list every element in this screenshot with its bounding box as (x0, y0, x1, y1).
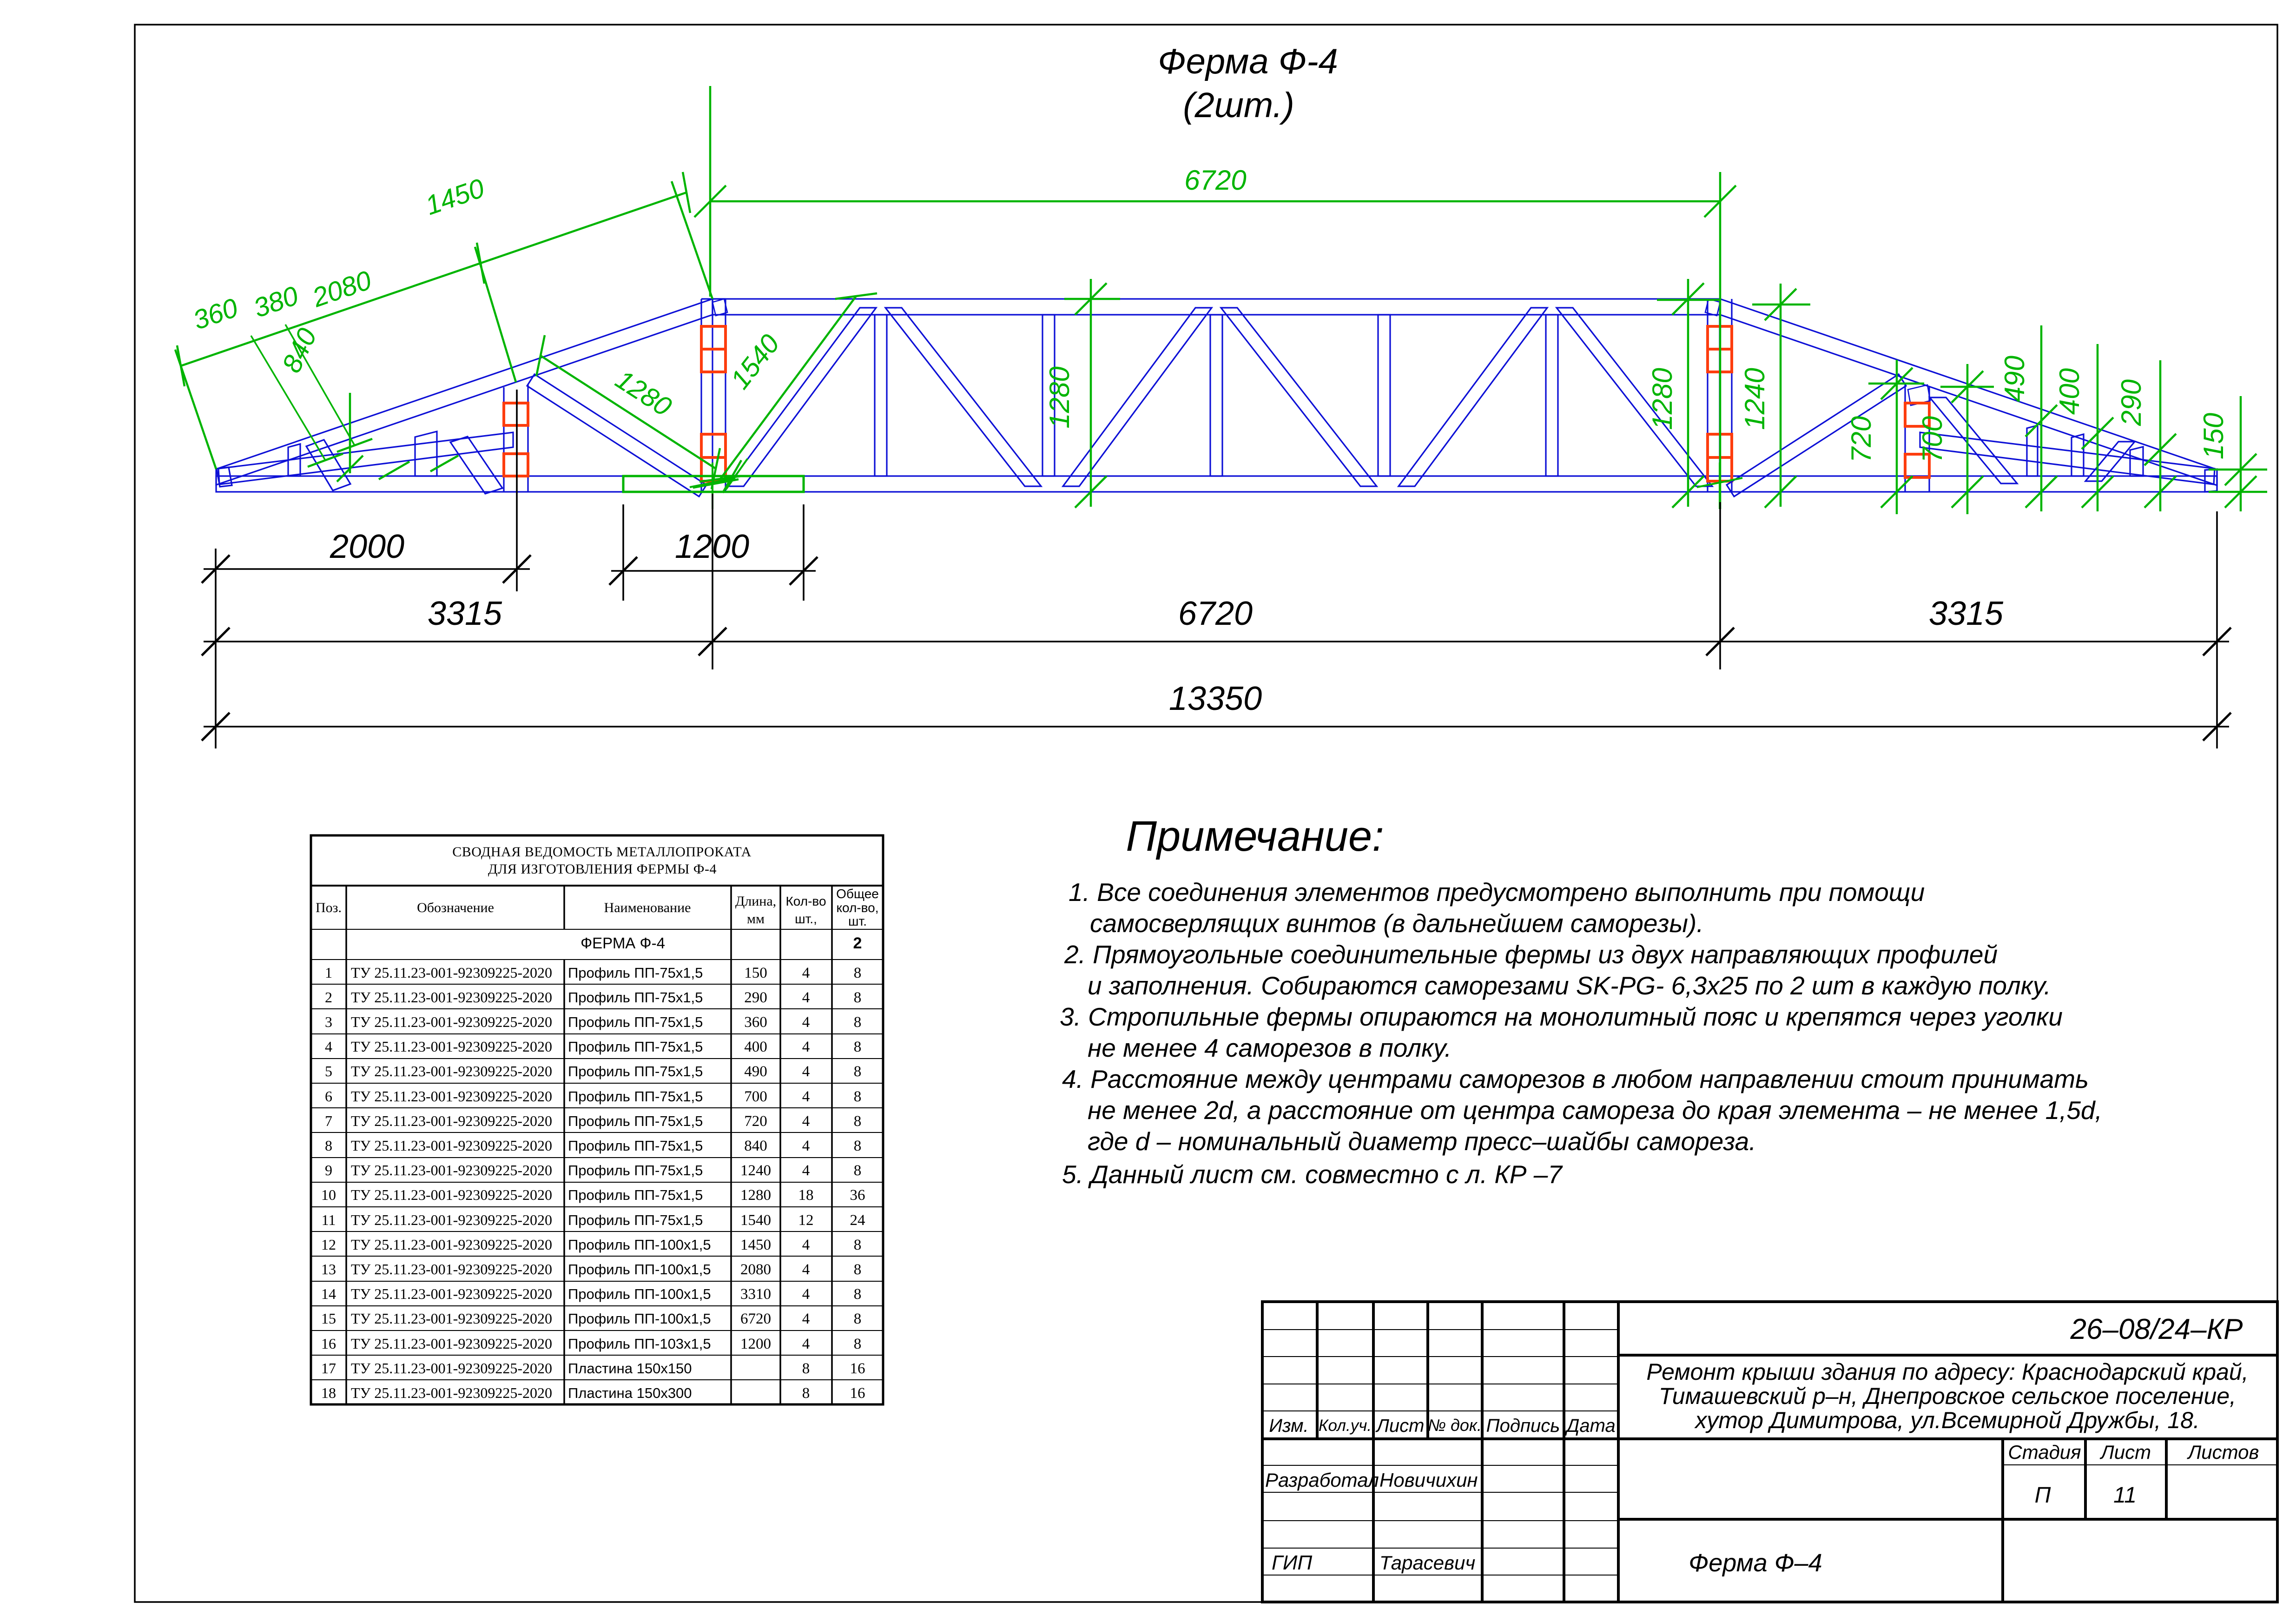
svg-text:Профиль ПП-100х1,5: Профиль ПП-100х1,5 (568, 1237, 711, 1253)
svg-text:Наименование: Наименование (604, 900, 691, 915)
svg-text:8: 8 (854, 1237, 862, 1253)
svg-text:8: 8 (802, 1360, 810, 1377)
svg-text:8: 8 (854, 1138, 862, 1154)
svg-text:Профиль ПП-75х1,5: Профиль ПП-75х1,5 (568, 1039, 703, 1055)
svg-text:ТУ 25.11.23-001-92309225-2020: ТУ 25.11.23-001-92309225-2020 (351, 1360, 552, 1377)
svg-text:5. Данный лист см. совме: 5. Данный лист см. совместно с л. КР –7 (1062, 1160, 1563, 1189)
svg-text:Новичихин: Новичихин (1379, 1469, 1478, 1491)
svg-text:Изм.: Изм. (1269, 1416, 1308, 1436)
svg-text:8: 8 (802, 1385, 810, 1402)
svg-text:мм: мм (747, 911, 765, 927)
svg-text:16: 16 (321, 1335, 336, 1352)
svg-text:ТУ 25.11.23-001-92309225-2020: ТУ 25.11.23-001-92309225-2020 (351, 1112, 552, 1129)
svg-text:4: 4 (802, 1113, 810, 1130)
svg-text:Профиль ПП-75х1,5: Профиль ПП-75х1,5 (568, 1187, 703, 1203)
svg-text:3. Стропильные фермы опираютс: 3. Стропильные фермы опираются на моноли… (1060, 1002, 2063, 1031)
svg-text:ТУ 25.11.23-001-92309225-2020: ТУ 25.11.23-001-92309225-2020 (351, 1038, 552, 1055)
svg-text:4: 4 (802, 1014, 810, 1031)
svg-text:ТУ 25.11.23-001-92309225-2020: ТУ 25.11.23-001-92309225-2020 (351, 1285, 552, 1302)
svg-text:1200: 1200 (675, 528, 749, 565)
svg-text:8: 8 (854, 1261, 862, 1278)
svg-text:7: 7 (325, 1112, 332, 1129)
svg-text:хутор Димитрова, ул.Всемирной: хутор Димитрова, ул.Всемирной Дружбы, 18… (1694, 1407, 2200, 1433)
svg-text:ТУ 25.11.23-001-92309225-2020: ТУ 25.11.23-001-92309225-2020 (351, 1236, 552, 1253)
svg-text:1240: 1240 (740, 1162, 771, 1179)
svg-text:3315: 3315 (1929, 595, 2004, 632)
svg-text:4. Расстояние между центрами: 4. Расстояние между центрами саморезов в… (1062, 1065, 2089, 1093)
svg-text:4: 4 (802, 1311, 810, 1327)
svg-text:Профиль ПП-75х1,5: Профиль ПП-75х1,5 (568, 1212, 703, 1228)
svg-text:8: 8 (854, 1336, 862, 1352)
svg-text:ТУ 25.11.23-001-92309225-2020: ТУ 25.11.23-001-92309225-2020 (351, 989, 552, 1006)
svg-text:1240: 1240 (1739, 368, 1770, 430)
svg-text:ТУ 25.11.23-001-92309225-2020: ТУ 25.11.23-001-92309225-2020 (351, 1162, 552, 1178)
svg-text:8: 8 (854, 989, 862, 1006)
svg-text:840: 840 (744, 1138, 767, 1154)
svg-text:13: 13 (321, 1261, 336, 1278)
svg-text:ТУ 25.11.23-001-92309225-2020: ТУ 25.11.23-001-92309225-2020 (351, 1261, 552, 1278)
svg-text:4: 4 (802, 1336, 810, 1352)
svg-text:17: 17 (321, 1360, 336, 1377)
svg-text:Профиль ПП-103х1,5: Профиль ПП-103х1,5 (568, 1336, 711, 1352)
svg-text:2080: 2080 (740, 1261, 771, 1278)
svg-text:П: П (2035, 1483, 2051, 1508)
svg-text:16: 16 (850, 1385, 865, 1402)
svg-text:Общее: Общее (836, 887, 879, 901)
svg-text:ТУ 25.11.23-001-92309225-2020: ТУ 25.11.23-001-92309225-2020 (351, 1335, 552, 1352)
svg-text:ТУ 25.11.23-001-92309225-2020: ТУ 25.11.23-001-92309225-2020 (351, 964, 552, 981)
svg-text:Профиль ПП-75х1,5: Профиль ПП-75х1,5 (568, 965, 703, 981)
svg-text:шт.,: шт., (795, 912, 817, 926)
svg-text:Примечание:: Примечание: (1126, 813, 1384, 860)
svg-text:ФЕРМА Ф-4: ФЕРМА Ф-4 (581, 934, 665, 952)
svg-text:4: 4 (802, 965, 810, 981)
svg-text:2000: 2000 (330, 528, 404, 565)
svg-text:400: 400 (744, 1039, 767, 1055)
svg-text:4: 4 (802, 1039, 810, 1055)
svg-text:1200: 1200 (740, 1336, 771, 1352)
svg-text:8: 8 (854, 1113, 862, 1130)
svg-text:8: 8 (854, 1311, 862, 1327)
svg-text:Кол-во: Кол-во (785, 894, 826, 908)
svg-text:700: 700 (1917, 416, 1948, 463)
svg-text:16: 16 (850, 1360, 865, 1377)
svg-text:24: 24 (850, 1212, 865, 1229)
svg-text:1280: 1280 (740, 1187, 771, 1204)
svg-text:Профиль ПП-75х1,5: Профиль ПП-75х1,5 (568, 1063, 703, 1079)
svg-text:ГИП: ГИП (1272, 1551, 1312, 1574)
svg-text:ТУ 25.11.23-001-92309225-2020: ТУ 25.11.23-001-92309225-2020 (351, 1013, 552, 1030)
svg-text:720: 720 (744, 1113, 767, 1130)
svg-text:Профиль ПП-75х1,5: Профиль ПП-75х1,5 (568, 989, 703, 1006)
svg-text:Профиль ПП-75х1,5: Профиль ПП-75х1,5 (568, 1014, 703, 1030)
svg-text:12: 12 (321, 1236, 336, 1253)
svg-text:Разработал: Разработал (1265, 1469, 1379, 1491)
svg-text:1: 1 (325, 964, 332, 981)
svg-text:СВОДНАЯ ВЕДОМОСТЬ МЕТАЛЛОПР: СВОДНАЯ ВЕДОМОСТЬ МЕТАЛЛОПРОКАТА (452, 844, 752, 860)
svg-text:11: 11 (2113, 1483, 2137, 1508)
svg-text:1450: 1450 (740, 1237, 771, 1253)
svg-text:Профиль ПП-100х1,5: Профиль ПП-100х1,5 (568, 1286, 711, 1302)
svg-text:26–08/24–КР: 26–08/24–КР (2070, 1313, 2243, 1345)
svg-text:18: 18 (321, 1384, 336, 1401)
svg-text:и заполнения. Собираются само: и заполнения. Собираются саморезами SK-P… (1088, 971, 2051, 1000)
svg-text:Листов: Листов (2187, 1441, 2259, 1463)
svg-text:Ферма Ф-4: Ферма Ф-4 (1158, 42, 1338, 81)
svg-text:10: 10 (321, 1186, 336, 1203)
svg-text:290: 290 (744, 989, 767, 1006)
svg-text:5: 5 (325, 1063, 332, 1079)
svg-text:самосверлящих винтов (в дальн: самосверлящих винтов (в дальнейшем самор… (1090, 909, 1704, 938)
svg-text:Тарасевич: Тарасевич (1379, 1552, 1475, 1574)
svg-text:№ док.: № док. (1428, 1416, 1482, 1435)
svg-text:8: 8 (854, 1088, 862, 1105)
svg-text:Тимашевский р–н, Днепровское: Тимашевский р–н, Днепровское сельское по… (1659, 1383, 2236, 1409)
svg-text:2: 2 (325, 989, 332, 1006)
svg-text:2: 2 (853, 934, 862, 952)
svg-text:4: 4 (802, 1237, 810, 1253)
svg-text:2. Прямоугольные соединитель: 2. Прямоугольные соединительные фермы из… (1064, 940, 1998, 969)
svg-text:не менее 2d, а расстояние от ц: не менее 2d, а расстояние от центра само… (1088, 1096, 2102, 1125)
svg-text:ТУ 25.11.23-001-92309225-2020: ТУ 25.11.23-001-92309225-2020 (351, 1088, 552, 1105)
svg-text:290: 290 (2116, 379, 2147, 426)
svg-text:4: 4 (802, 989, 810, 1006)
svg-text:шт.: шт. (848, 914, 867, 928)
svg-text:где d – номинальный диаметр пр: где d – номинальный диаметр пресс–шайбы … (1088, 1127, 1756, 1156)
svg-text:15: 15 (321, 1310, 336, 1327)
svg-text:Пластина 150х150: Пластина 150х150 (568, 1360, 692, 1377)
svg-text:1280: 1280 (1044, 366, 1075, 428)
svg-text:13350: 13350 (1169, 680, 1262, 717)
svg-text:3: 3 (325, 1013, 332, 1030)
svg-text:8: 8 (854, 1162, 862, 1179)
svg-text:Профиль ПП-100х1,5: Профиль ПП-100х1,5 (568, 1261, 711, 1278)
svg-text:1540: 1540 (740, 1212, 771, 1229)
svg-text:не менее 4 саморезов в полк: не менее 4 саморезов в полку. (1088, 1033, 1451, 1062)
svg-text:6: 6 (325, 1088, 332, 1105)
svg-text:Профиль ПП-100х1,5: Профиль ПП-100х1,5 (568, 1311, 711, 1327)
svg-text:4: 4 (802, 1088, 810, 1105)
svg-text:Подпись: Подпись (1486, 1416, 1560, 1436)
svg-text:8: 8 (854, 1039, 862, 1055)
svg-text:18: 18 (798, 1187, 814, 1204)
svg-text:ТУ 25.11.23-001-92309225-2020: ТУ 25.11.23-001-92309225-2020 (351, 1212, 552, 1228)
svg-text:490: 490 (744, 1063, 767, 1080)
svg-text:3315: 3315 (428, 595, 502, 632)
svg-text:Профиль ПП-75х1,5: Профиль ПП-75х1,5 (568, 1162, 703, 1178)
svg-text:3310: 3310 (740, 1286, 771, 1303)
svg-text:4: 4 (325, 1038, 332, 1055)
svg-text:Лист: Лист (1375, 1416, 1425, 1436)
svg-text:Кол.уч.: Кол.уч. (1319, 1417, 1372, 1435)
svg-text:ТУ 25.11.23-001-92309225-2020: ТУ 25.11.23-001-92309225-2020 (351, 1063, 552, 1079)
svg-text:1. Все соединения элементов: 1. Все соединения элементов предусмотрен… (1069, 878, 1925, 907)
svg-text:6720: 6720 (1184, 165, 1246, 196)
svg-text:4: 4 (802, 1063, 810, 1080)
svg-text:Профиль ПП-75х1,5: Профиль ПП-75х1,5 (568, 1113, 703, 1129)
svg-text:11: 11 (322, 1212, 336, 1228)
svg-text:ДЛЯ ИЗГОТОВЛЕНИЯ ФЕРМЫ Ф-4: ДЛЯ ИЗГОТОВЛЕНИЯ ФЕРМЫ Ф-4 (488, 861, 717, 877)
svg-text:кол-во,: кол-во, (836, 900, 878, 915)
svg-text:360: 360 (744, 1014, 767, 1031)
svg-text:ТУ 25.11.23-001-92309225-2020: ТУ 25.11.23-001-92309225-2020 (351, 1384, 552, 1401)
svg-text:6720: 6720 (740, 1311, 771, 1327)
svg-text:Ферма Ф–4: Ферма Ф–4 (1689, 1549, 1822, 1577)
svg-text:Обозначение: Обозначение (417, 900, 494, 915)
svg-text:150: 150 (2198, 413, 2229, 459)
svg-text:Поз.: Поз. (316, 900, 342, 915)
svg-text:12: 12 (798, 1212, 814, 1229)
svg-text:4: 4 (802, 1138, 810, 1154)
svg-text:8: 8 (854, 1014, 862, 1031)
svg-text:14: 14 (321, 1285, 336, 1302)
svg-text:Лист: Лист (2099, 1441, 2151, 1463)
svg-text:400: 400 (2054, 368, 2085, 415)
svg-text:1280: 1280 (1647, 368, 1678, 430)
svg-text:ТУ 25.11.23-001-92309225-2020: ТУ 25.11.23-001-92309225-2020 (351, 1186, 552, 1203)
svg-text:Пластина 150х300: Пластина 150х300 (568, 1385, 692, 1401)
svg-text:Дата: Дата (1564, 1416, 1616, 1436)
svg-text:9: 9 (325, 1162, 332, 1178)
svg-text:8: 8 (854, 965, 862, 981)
svg-text:4: 4 (802, 1286, 810, 1303)
svg-text:Профиль ПП-75х1,5: Профиль ПП-75х1,5 (568, 1088, 703, 1105)
svg-text:720: 720 (1846, 416, 1877, 463)
svg-text:150: 150 (744, 965, 767, 981)
svg-text:Профиль ПП-75х1,5: Профиль ПП-75х1,5 (568, 1138, 703, 1154)
svg-text:Ремонт крыши здания по адресу:: Ремонт крыши здания по адресу: Краснодар… (1646, 1359, 2248, 1385)
svg-text:Длина,: Длина, (735, 894, 776, 909)
svg-text:8: 8 (325, 1137, 332, 1154)
svg-text:8: 8 (854, 1063, 862, 1080)
svg-text:(2шт.): (2шт.) (1183, 86, 1294, 125)
svg-text:ТУ 25.11.23-001-92309225-2020: ТУ 25.11.23-001-92309225-2020 (351, 1310, 552, 1327)
svg-text:6720: 6720 (1178, 595, 1253, 632)
svg-text:4: 4 (802, 1162, 810, 1179)
svg-text:36: 36 (850, 1187, 865, 1204)
svg-text:ТУ 25.11.23-001-92309225-2020: ТУ 25.11.23-001-92309225-2020 (351, 1137, 552, 1154)
svg-text:Стадия: Стадия (2008, 1441, 2081, 1463)
svg-text:490: 490 (1999, 356, 2030, 402)
svg-text:4: 4 (802, 1261, 810, 1278)
svg-text:700: 700 (744, 1088, 767, 1105)
svg-text:8: 8 (854, 1286, 862, 1303)
